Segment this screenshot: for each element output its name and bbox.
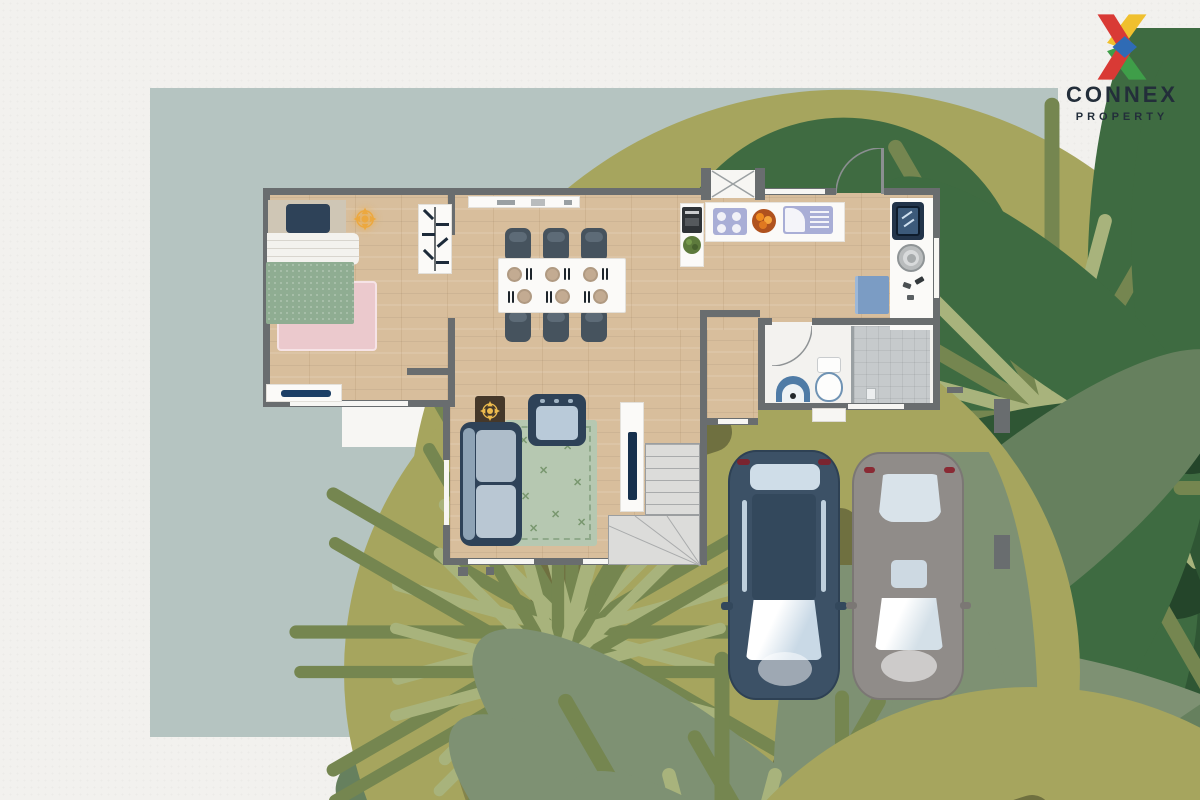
utility-item [907, 295, 914, 300]
dining-chair [505, 308, 531, 342]
window-top [765, 189, 825, 194]
bed-sheet [267, 233, 359, 265]
dining-chair [505, 228, 531, 262]
hanger-icon [423, 209, 434, 220]
car-mirror [846, 602, 857, 609]
cutlery-icon [526, 268, 528, 280]
rug-sprig: ✕ [577, 516, 586, 529]
hanger-icon [436, 223, 449, 226]
car-suv [728, 450, 840, 700]
cutlery-icon [550, 291, 552, 303]
stove-icon [713, 208, 747, 235]
cutlery-icon [508, 291, 510, 303]
carport-pillar [994, 535, 1010, 569]
place-setting-plate [555, 289, 570, 304]
dining-chair [581, 228, 607, 262]
car-taillight [737, 459, 750, 465]
porch-post [486, 567, 494, 575]
kitchen-window-cap [755, 168, 765, 200]
kitchen-window [711, 170, 755, 198]
window-bath [848, 404, 904, 409]
car-sunroof [891, 560, 927, 588]
car-windshield [875, 598, 943, 650]
cutlery-icon [564, 268, 566, 280]
place-setting-plate [517, 289, 532, 304]
rug-sprig: ✕ [539, 464, 548, 477]
car-mirror [960, 602, 971, 609]
car-taillight [864, 467, 875, 473]
hanger-icon [436, 261, 449, 264]
car-side-window [742, 500, 747, 592]
connex-logo-icon [1088, 14, 1156, 80]
bed-blanket [266, 262, 354, 324]
rug-sprig: ✕ [529, 522, 538, 535]
rug-sprig: ✕ [551, 508, 560, 521]
hanger-icon [437, 237, 449, 248]
car-taillight [944, 467, 955, 473]
staircase-straight [645, 443, 700, 515]
door-corridor [718, 419, 748, 424]
car-hood-highlight [881, 650, 937, 682]
bath-door-arc [772, 326, 812, 366]
cutlery-icon [512, 291, 514, 303]
cutlery-icon [606, 268, 608, 280]
dining-sideboard [468, 196, 580, 208]
wall-kitchen-bottom [700, 310, 760, 317]
connex-logo: CONNEX PROPERTY [1052, 14, 1192, 123]
rug-sprig: ✕ [573, 476, 582, 489]
cutlery-icon [584, 291, 586, 303]
rug-sprig: ✕ [521, 490, 530, 503]
carport-stub [947, 387, 963, 393]
bedroom-ceiling-light-icon [352, 206, 378, 232]
car-sedan [852, 452, 964, 700]
entry-door-arc [836, 148, 884, 196]
wall-bath-left [758, 318, 765, 410]
kitchen-sink-icon [783, 206, 833, 234]
window-right [934, 238, 939, 298]
car-mirror [721, 602, 733, 610]
dining-chair [543, 228, 569, 262]
logo-brand-text: CONNEX [1052, 82, 1192, 108]
bedroom-desk-item [281, 390, 331, 397]
floor-plan-canvas: ✕ ✕ ✕ ✕ ✕ ✕ ✕ ✕ [0, 0, 1200, 800]
shower-drain [866, 388, 876, 400]
window-living-left [444, 460, 449, 525]
staircase-winders [608, 515, 700, 565]
cutlery-icon [588, 291, 590, 303]
armchair [528, 394, 586, 446]
porch-post [458, 567, 468, 576]
sofa [460, 422, 522, 546]
wall-living-left-a [443, 400, 450, 460]
toilet-bowl [815, 372, 843, 402]
sideboard-item [564, 200, 572, 205]
fruit-bowl-icon [752, 209, 776, 233]
car-side-window [821, 500, 826, 592]
entry-door-leaf [881, 148, 884, 194]
cutlery-icon [546, 291, 548, 303]
washing-machine-icon [892, 202, 924, 240]
place-setting-plate [545, 267, 560, 282]
floor-corridor [707, 330, 758, 425]
tv-icon [628, 432, 637, 500]
laundry-basket-icon [897, 244, 925, 272]
hanger-icon [423, 249, 434, 260]
shower-divider [851, 326, 854, 403]
wall-bath-top-b [812, 318, 940, 325]
toilet-mat [812, 408, 846, 422]
place-setting-plate [583, 267, 598, 282]
bed-pillow [286, 204, 330, 233]
oven-icon [682, 207, 702, 233]
laundry-table [855, 276, 889, 314]
cutlery-icon [602, 268, 604, 280]
carport-pillar [994, 399, 1010, 433]
wall-stair-right [700, 310, 707, 565]
window-living-bottom-1 [468, 559, 534, 564]
place-setting-plate [593, 289, 608, 304]
dining-chair [543, 308, 569, 342]
car-hood-highlight [758, 652, 812, 686]
hanger-icon [422, 233, 435, 236]
wall-bedroom-right-bottom [448, 318, 455, 368]
logo-sub-text: PROPERTY [1052, 111, 1192, 123]
car-roof [752, 494, 816, 600]
dining-chair [581, 308, 607, 342]
car-taillight [818, 459, 831, 465]
wall-right [933, 188, 940, 410]
dining-table [498, 258, 626, 313]
wall-top-right [884, 188, 940, 195]
sideboard-item [497, 200, 515, 205]
cutlery-icon [530, 268, 532, 280]
wardrobe [418, 204, 452, 274]
cutlery-icon [568, 268, 570, 280]
bathroom-sink-icon [776, 376, 810, 402]
car-rear-window [878, 474, 942, 522]
car-rear-window [750, 464, 820, 490]
toilet-icon [817, 357, 841, 373]
place-setting-plate [507, 267, 522, 282]
plant-icon [683, 236, 701, 254]
car-windshield [746, 600, 822, 660]
kitchen-window-cap [701, 168, 711, 200]
sideboard-item [531, 199, 545, 206]
